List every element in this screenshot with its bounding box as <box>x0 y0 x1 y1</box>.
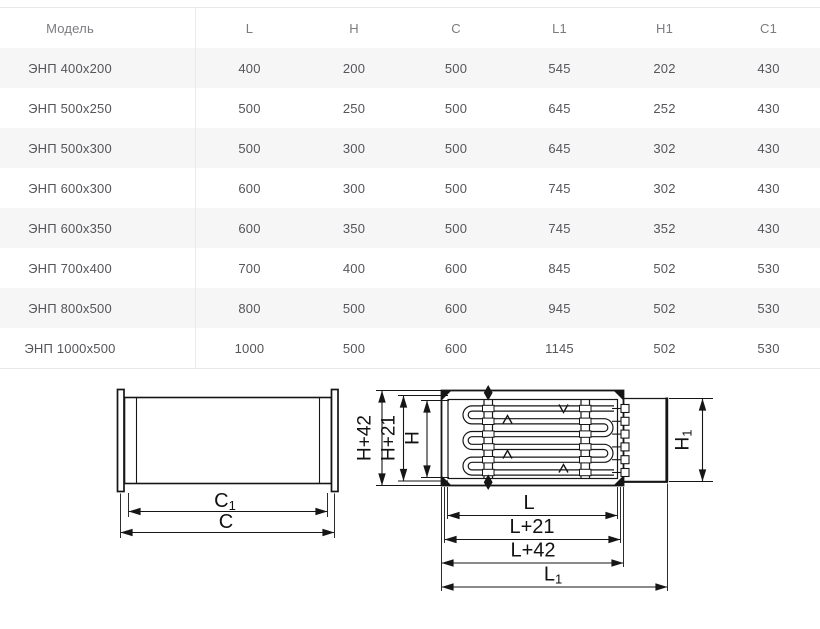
model-cell: ЭНП 800x500 <box>0 288 195 328</box>
side-view: C1 C <box>118 390 339 539</box>
header-l1: L1 <box>507 8 612 48</box>
dim-cell: 500 <box>303 328 405 368</box>
dimension-l42: L+42 <box>442 540 624 564</box>
dim-cell: 600 <box>195 168 303 208</box>
header-l: L <box>195 8 303 48</box>
dim-cell: 500 <box>303 288 405 328</box>
dim-cell: 945 <box>507 288 612 328</box>
dim-label-l: L <box>523 492 534 514</box>
dim-cell: 645 <box>507 88 612 128</box>
dim-cell: 352 <box>612 208 717 248</box>
dim-cell: 300 <box>303 128 405 168</box>
dim-cell: 202 <box>612 48 717 88</box>
dim-cell: 400 <box>303 248 405 288</box>
terminal-box <box>624 398 669 483</box>
tube-terminals <box>612 405 629 477</box>
dim-cell: 645 <box>507 128 612 168</box>
dimension-l1: L1 <box>442 564 668 588</box>
dim-label-c: C <box>219 511 233 533</box>
dim-cell: 252 <box>612 88 717 128</box>
duct-body <box>125 398 332 484</box>
dim-cell: 502 <box>612 248 717 288</box>
table-row: ЭНП 500x250 500 250 500 645 252 430 <box>0 88 820 128</box>
dim-cell: 430 <box>717 208 820 248</box>
header-h1: H1 <box>612 8 717 48</box>
support-bracket-left <box>483 385 495 490</box>
dim-cell: 430 <box>717 128 820 168</box>
dim-cell: 800 <box>195 288 303 328</box>
header-c1: C1 <box>717 8 820 48</box>
table-row: ЭНП 700x400 700 400 600 845 502 530 <box>0 248 820 288</box>
dim-label-c1: C1 <box>214 490 236 513</box>
table-row: ЭНП 800x500 800 500 600 945 502 530 <box>0 288 820 328</box>
table-row: ЭНП 600x350 600 350 500 745 352 430 <box>0 208 820 248</box>
table-header-row: Модель L H C L1 H1 C1 <box>0 8 820 48</box>
flange-left <box>118 390 125 492</box>
dim-cell: 745 <box>507 168 612 208</box>
dim-cell: 530 <box>717 248 820 288</box>
dim-label-h42: H+42 <box>355 415 376 461</box>
dim-label-l1: L1 <box>544 564 562 587</box>
table-row: ЭНП 1000x500 1000 500 600 1145 502 530 <box>0 328 820 368</box>
dim-cell: 1145 <box>507 328 612 368</box>
bracket-bolt-top <box>484 385 493 401</box>
dim-cell: 500 <box>405 168 507 208</box>
dim-label-h1: H1 <box>673 430 695 451</box>
dim-label-h: H <box>403 431 424 445</box>
dim-cell: 500 <box>405 208 507 248</box>
dim-cell: 845 <box>507 248 612 288</box>
bracket-bolt-bottom <box>484 474 493 490</box>
dim-cell: 302 <box>612 128 717 168</box>
dim-cell: 500 <box>405 128 507 168</box>
dim-cell: 302 <box>612 168 717 208</box>
header-c: C <box>405 8 507 48</box>
dim-cell: 530 <box>717 288 820 328</box>
dim-cell: 430 <box>717 48 820 88</box>
dim-cell: 400 <box>195 48 303 88</box>
dim-cell: 430 <box>717 88 820 128</box>
model-cell: ЭНП 600x300 <box>0 168 195 208</box>
header-h: H <box>303 8 405 48</box>
dim-cell: 1000 <box>195 328 303 368</box>
technical-drawing: C1 C <box>0 369 820 622</box>
table-row: ЭНП 400x200 400 200 500 545 202 430 <box>0 48 820 88</box>
model-cell: ЭНП 600x350 <box>0 208 195 248</box>
dim-cell: 500 <box>405 48 507 88</box>
dim-cell: 430 <box>717 168 820 208</box>
dim-label-h21: H+21 <box>379 415 400 461</box>
dimension-l: L <box>448 492 618 516</box>
front-view: H+42 H+21 H H1 <box>355 385 714 591</box>
dim-cell: 502 <box>612 288 717 328</box>
dim-cell: 600 <box>195 208 303 248</box>
dim-cell: 600 <box>405 328 507 368</box>
dim-cell: 500 <box>405 88 507 128</box>
model-cell: ЭНП 400x200 <box>0 48 195 88</box>
support-bracket-right <box>580 400 592 479</box>
model-cell: ЭНП 500x300 <box>0 128 195 168</box>
dim-cell: 600 <box>405 248 507 288</box>
flange-right <box>332 390 339 492</box>
model-cell: ЭНП 500x250 <box>0 88 195 128</box>
dim-cell: 250 <box>303 88 405 128</box>
dim-cell: 300 <box>303 168 405 208</box>
dim-label-l42: L+42 <box>510 540 555 562</box>
model-cell: ЭНП 700x400 <box>0 248 195 288</box>
dimension-l21: L+21 <box>445 516 621 540</box>
dim-cell: 545 <box>507 48 612 88</box>
dim-cell: 530 <box>717 328 820 368</box>
dim-cell: 600 <box>405 288 507 328</box>
header-model: Модель <box>0 8 195 48</box>
dim-cell: 745 <box>507 208 612 248</box>
model-cell: ЭНП 1000x500 <box>0 328 195 368</box>
dim-cell: 500 <box>195 88 303 128</box>
heating-coil <box>463 406 614 475</box>
table-row: ЭНП 500x300 500 300 500 645 302 430 <box>0 128 820 168</box>
dimensions-table: Модель L H C L1 H1 C1 ЭНП 400x200 400 20… <box>0 7 820 369</box>
dim-cell: 500 <box>195 128 303 168</box>
dim-cell: 502 <box>612 328 717 368</box>
dim-cell: 350 <box>303 208 405 248</box>
dim-cell: 200 <box>303 48 405 88</box>
dim-cell: 700 <box>195 248 303 288</box>
table-row: ЭНП 600x300 600 300 500 745 302 430 <box>0 168 820 208</box>
dimension-h1: H1 <box>669 399 713 482</box>
dim-label-l21: L+21 <box>509 516 554 538</box>
